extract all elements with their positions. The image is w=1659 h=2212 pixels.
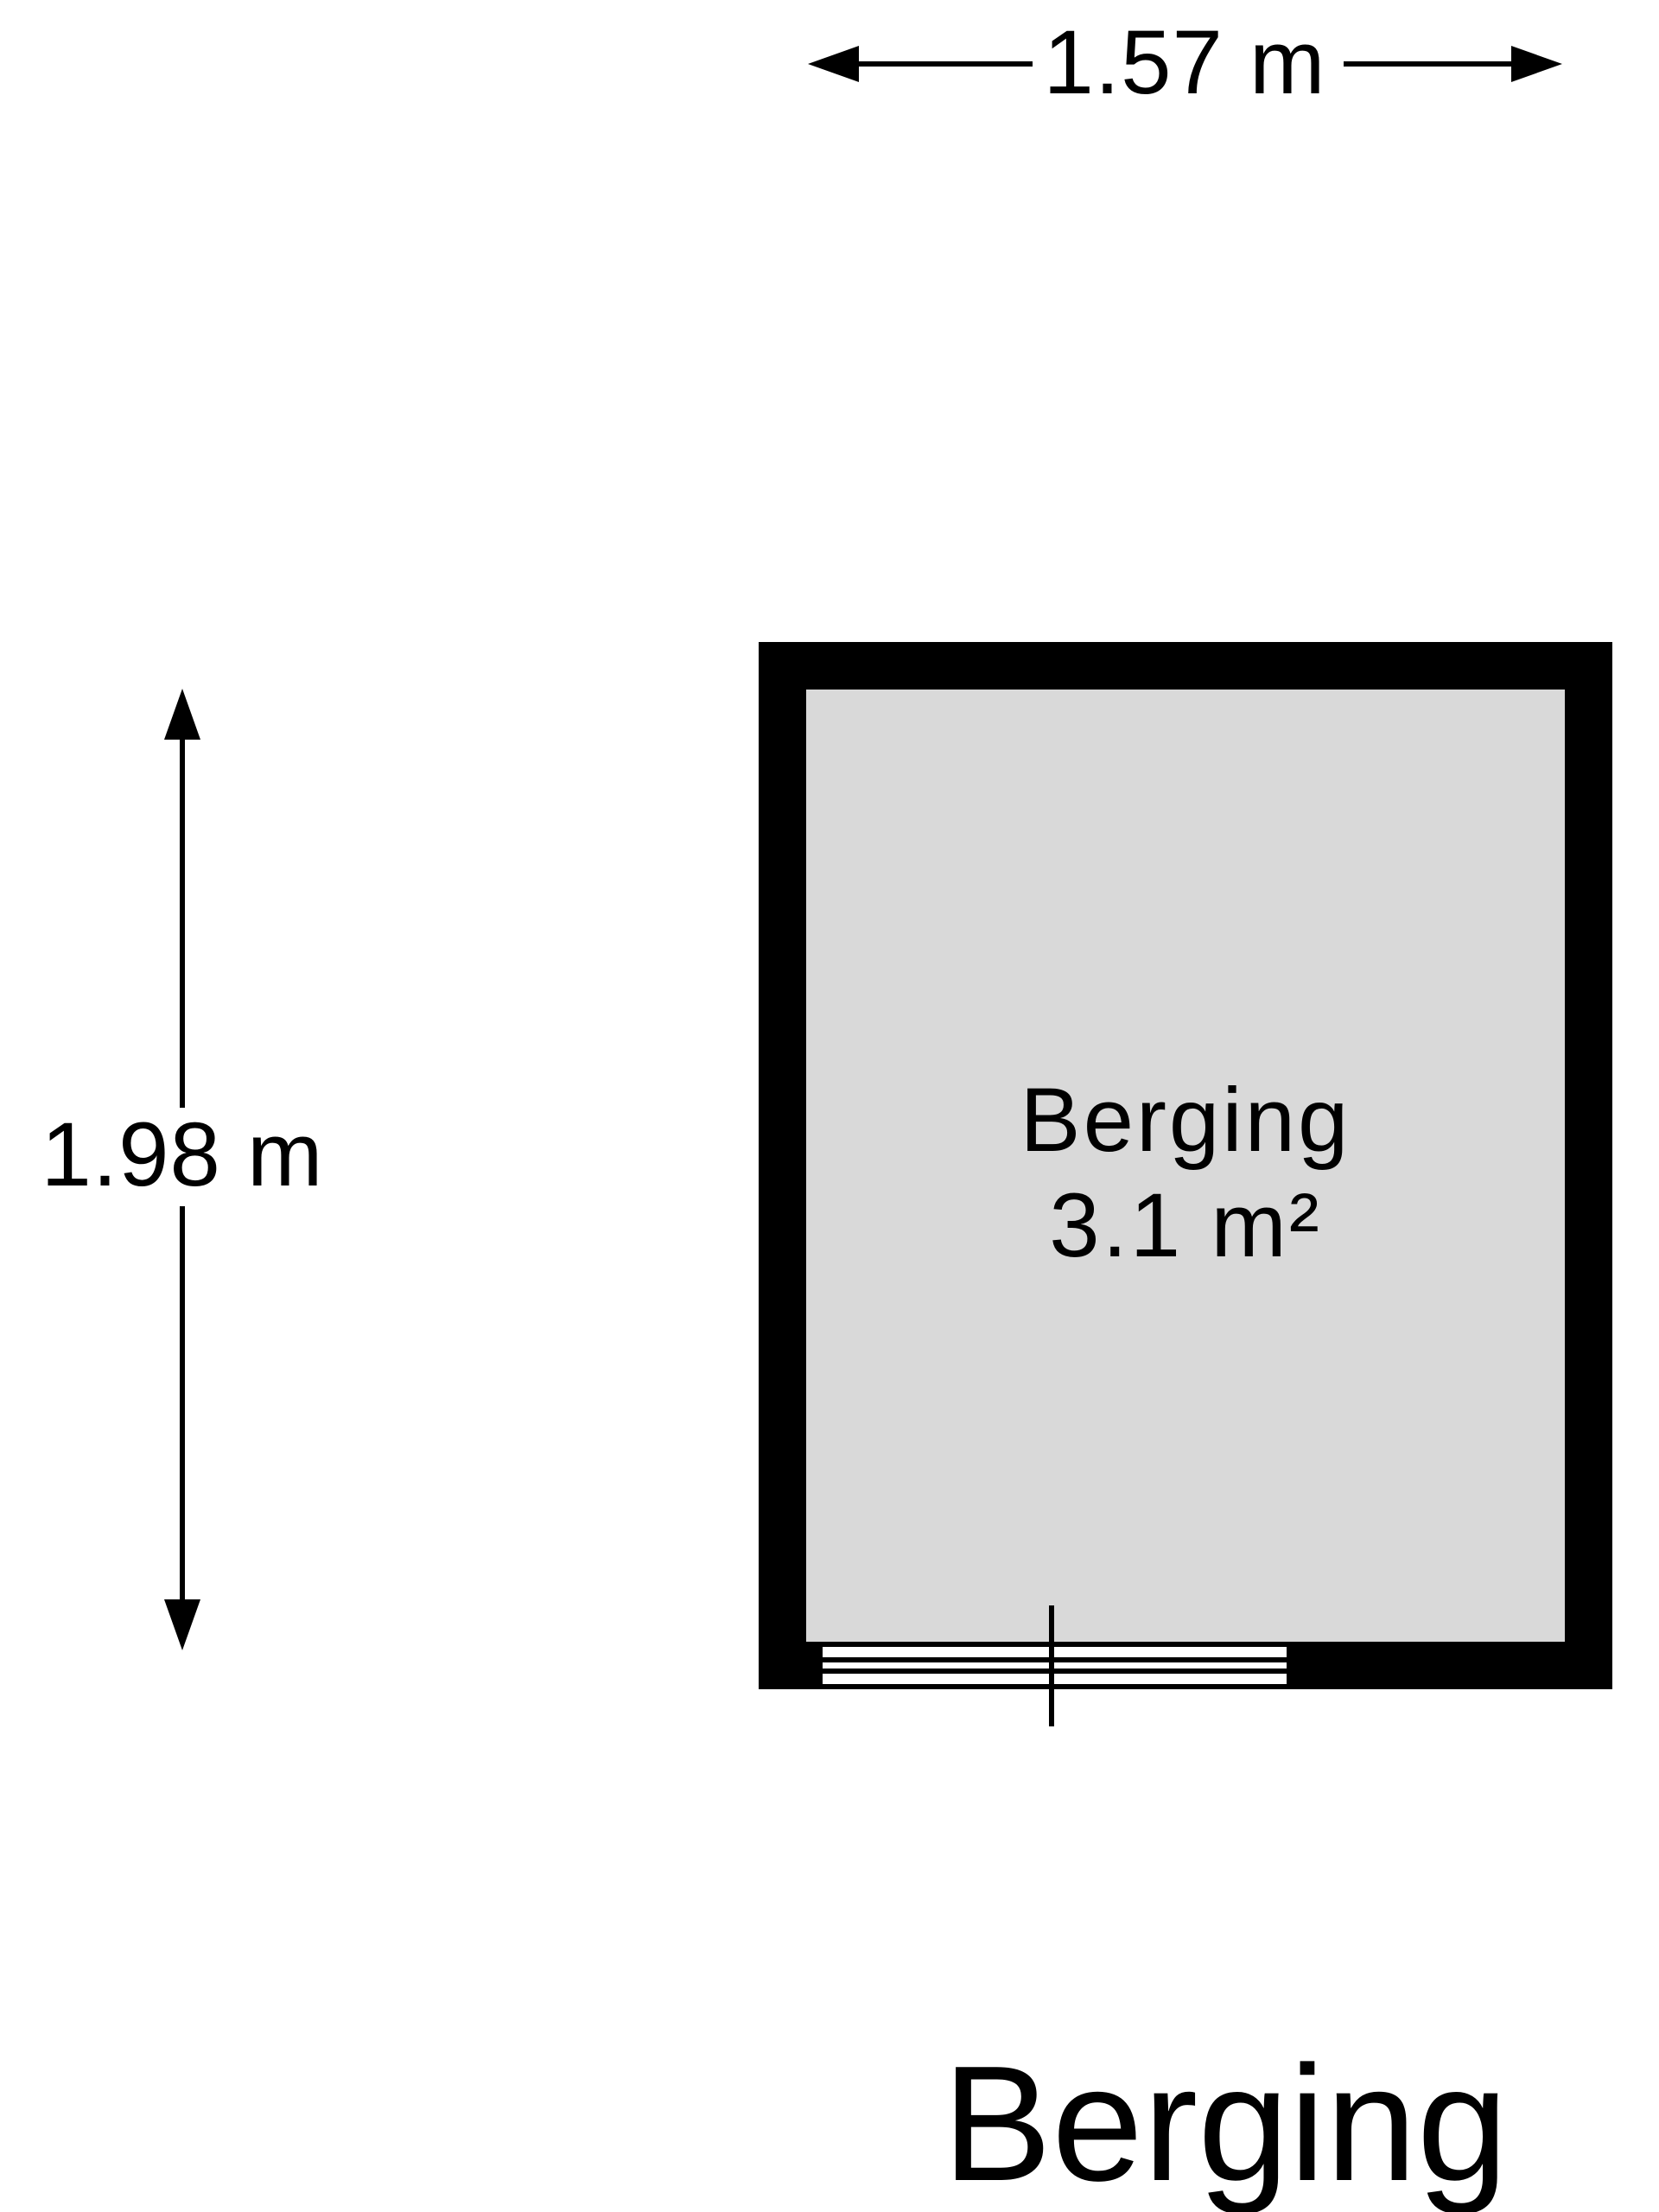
plan-title: Berging: [793, 2037, 1657, 2210]
window-glass-line: [823, 1669, 1287, 1674]
arrow-up-icon: [164, 689, 200, 740]
arrow-down-triangle: [164, 1599, 200, 1650]
dimension-top-line-left: [821, 61, 1033, 67]
room-label: Berging 3.1 m²: [806, 1068, 1565, 1279]
dimension-top-label: 1.57 m: [1012, 16, 1357, 111]
room-name: Berging: [806, 1068, 1565, 1173]
dimension-left-line-bottom: [180, 1206, 185, 1600]
window-symbol: [823, 1642, 1287, 1689]
dimension-left-label: 1.98 m: [0, 1108, 398, 1203]
floorplan-canvas: 1.57 m 1.98 m Berging 3.1 m² Berging: [0, 0, 1659, 2212]
window-glass-line: [823, 1657, 1287, 1662]
dimension-left-line-top: [180, 734, 185, 1108]
window-center-tick: [1049, 1605, 1054, 1726]
room-area: 3.1 m²: [806, 1173, 1565, 1279]
arrow-right-icon: [1511, 46, 1562, 82]
